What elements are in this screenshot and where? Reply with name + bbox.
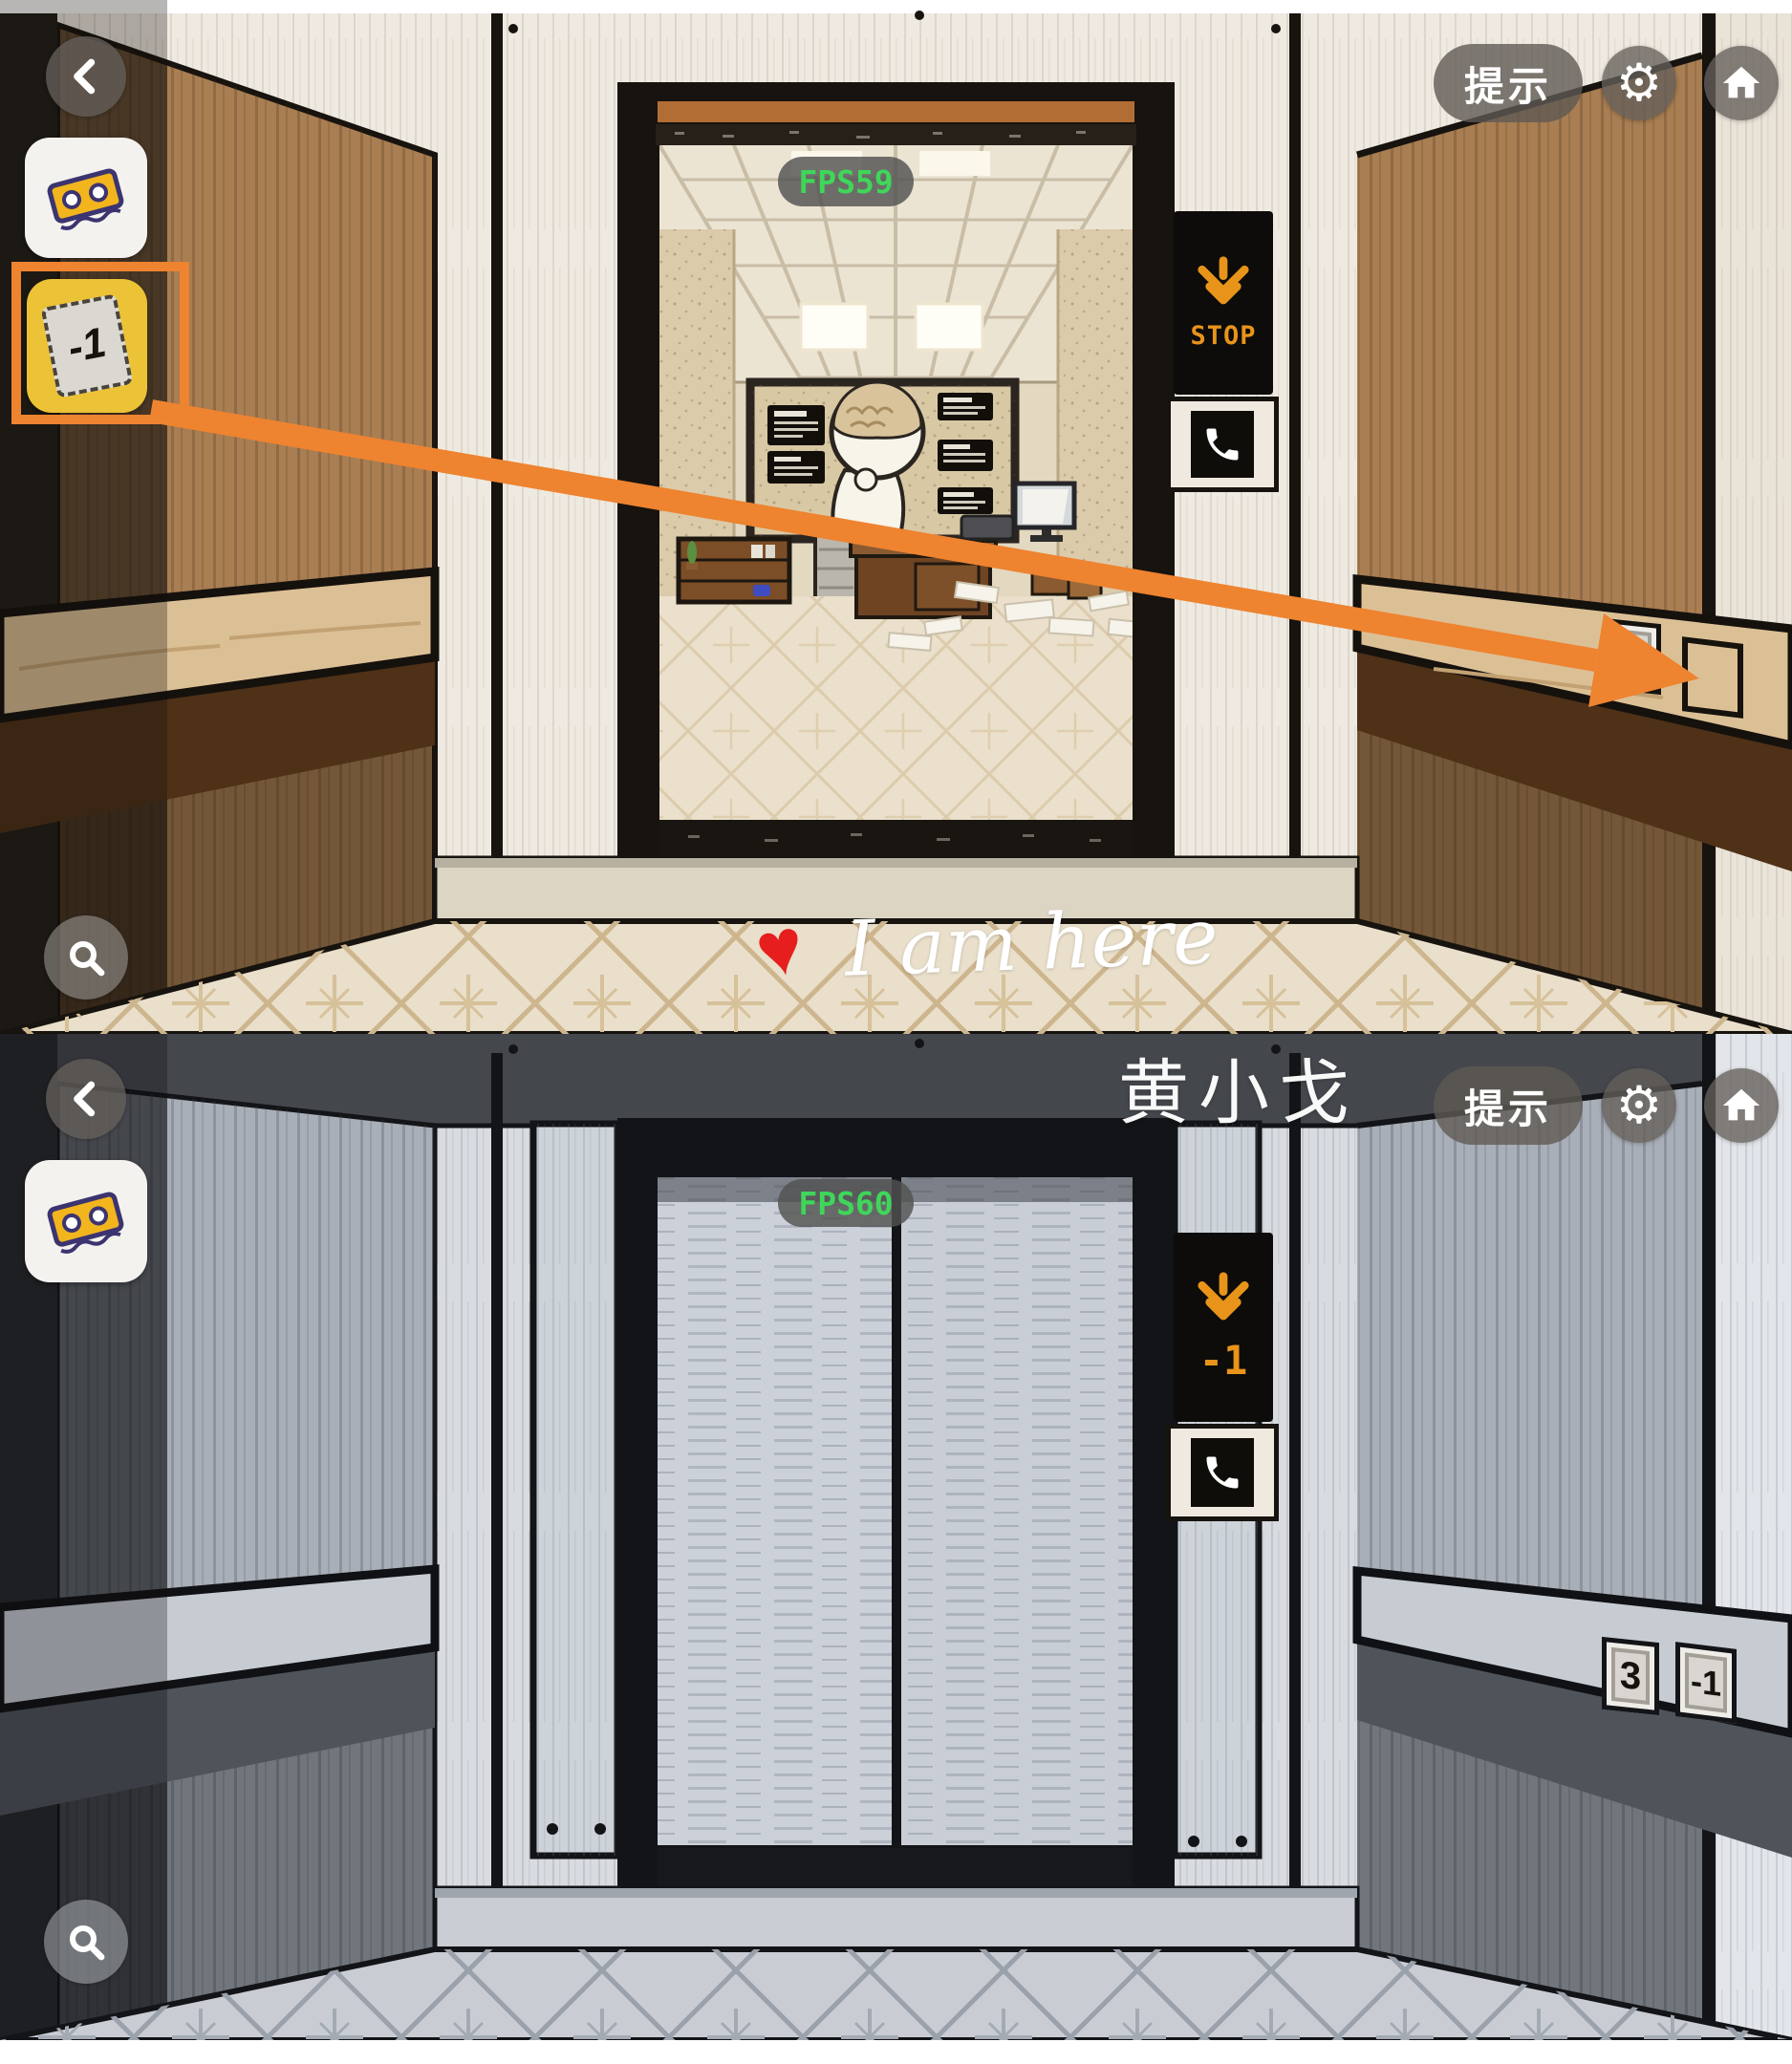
magnifier-icon xyxy=(63,935,109,980)
down-arrow-icon xyxy=(1193,1272,1254,1323)
game-screenshot-stack: -1 提示 ⚙ FPS59 STOP 3 xyxy=(0,0,1792,2064)
settings-button[interactable]: ⚙ xyxy=(1602,1068,1676,1143)
home-button[interactable] xyxy=(1704,46,1779,120)
floor-button-3-label: 3 xyxy=(1620,1653,1641,1698)
zoom-button[interactable] xyxy=(44,915,128,1000)
letterbox-top xyxy=(0,0,1792,13)
fps-badge: FPS59 xyxy=(778,157,914,206)
chevron-left-icon xyxy=(65,1072,107,1126)
phone-button[interactable] xyxy=(1166,1424,1279,1521)
closed-doors[interactable] xyxy=(658,1177,1133,1848)
office-desk xyxy=(851,541,996,617)
chevron-left-icon xyxy=(65,50,107,103)
hint-button[interactable]: 提示 xyxy=(1434,1066,1583,1145)
zoom-button[interactable] xyxy=(44,1900,128,1984)
scene-elevator-open xyxy=(0,0,1792,1034)
floor-button-minus1[interactable]: -1 xyxy=(1675,1642,1737,1724)
right-wall xyxy=(1357,55,1702,1034)
back-button[interactable] xyxy=(46,1059,126,1139)
inventory-item-cassette[interactable] xyxy=(25,138,147,258)
hint-label: 提示 xyxy=(1464,1077,1552,1135)
watermark-name: 黄小戈 xyxy=(1118,1036,1359,1138)
office-printer xyxy=(961,516,1013,539)
hint-button[interactable]: 提示 xyxy=(1434,44,1583,122)
floor-button-3[interactable]: 3 xyxy=(1602,1637,1659,1715)
home-icon xyxy=(1719,61,1763,105)
tutorial-highlight-box xyxy=(11,262,189,424)
fps-badge: FPS60 xyxy=(778,1179,914,1227)
down-arrow-icon xyxy=(1193,256,1254,308)
fps-value: FPS60 xyxy=(798,1185,893,1222)
door-threshold xyxy=(658,1848,1133,1888)
settings-button[interactable]: ⚙ xyxy=(1602,46,1676,120)
watermark-i-am-here: I am here xyxy=(843,892,1219,994)
fps-value: FPS59 xyxy=(798,163,893,201)
phone-icon xyxy=(1201,1451,1243,1494)
phone-button[interactable] xyxy=(1166,397,1279,492)
cassette-ticket-icon xyxy=(41,161,131,235)
floor-button-3-label: 3 xyxy=(1622,634,1643,678)
home-icon xyxy=(1719,1084,1763,1128)
floor-button-3[interactable]: 3 xyxy=(1604,618,1661,695)
elevator-display: -1 xyxy=(1174,1233,1273,1422)
magnifier-icon xyxy=(63,1919,109,1965)
gear-icon: ⚙ xyxy=(1616,1080,1662,1131)
elevator-display: STOP xyxy=(1174,211,1273,395)
home-button[interactable] xyxy=(1704,1068,1779,1143)
inventory-item-cassette[interactable] xyxy=(25,1160,147,1282)
letterbox-bottom xyxy=(0,2040,1792,2064)
floor-button-minus1-label: -1 xyxy=(1691,1661,1721,1705)
display-text: -1 xyxy=(1199,1337,1248,1384)
display-text: STOP xyxy=(1190,321,1256,351)
phone-icon xyxy=(1201,423,1243,465)
hint-label: 提示 xyxy=(1464,54,1552,113)
empty-button-slot[interactable] xyxy=(1682,636,1743,719)
gear-icon: ⚙ xyxy=(1616,57,1662,109)
back-button[interactable] xyxy=(46,36,126,117)
door-sill xyxy=(435,1888,1357,1949)
office-doorway[interactable] xyxy=(659,145,1152,858)
cassette-ticket-icon xyxy=(41,1184,131,1258)
office-shelf xyxy=(679,539,789,602)
